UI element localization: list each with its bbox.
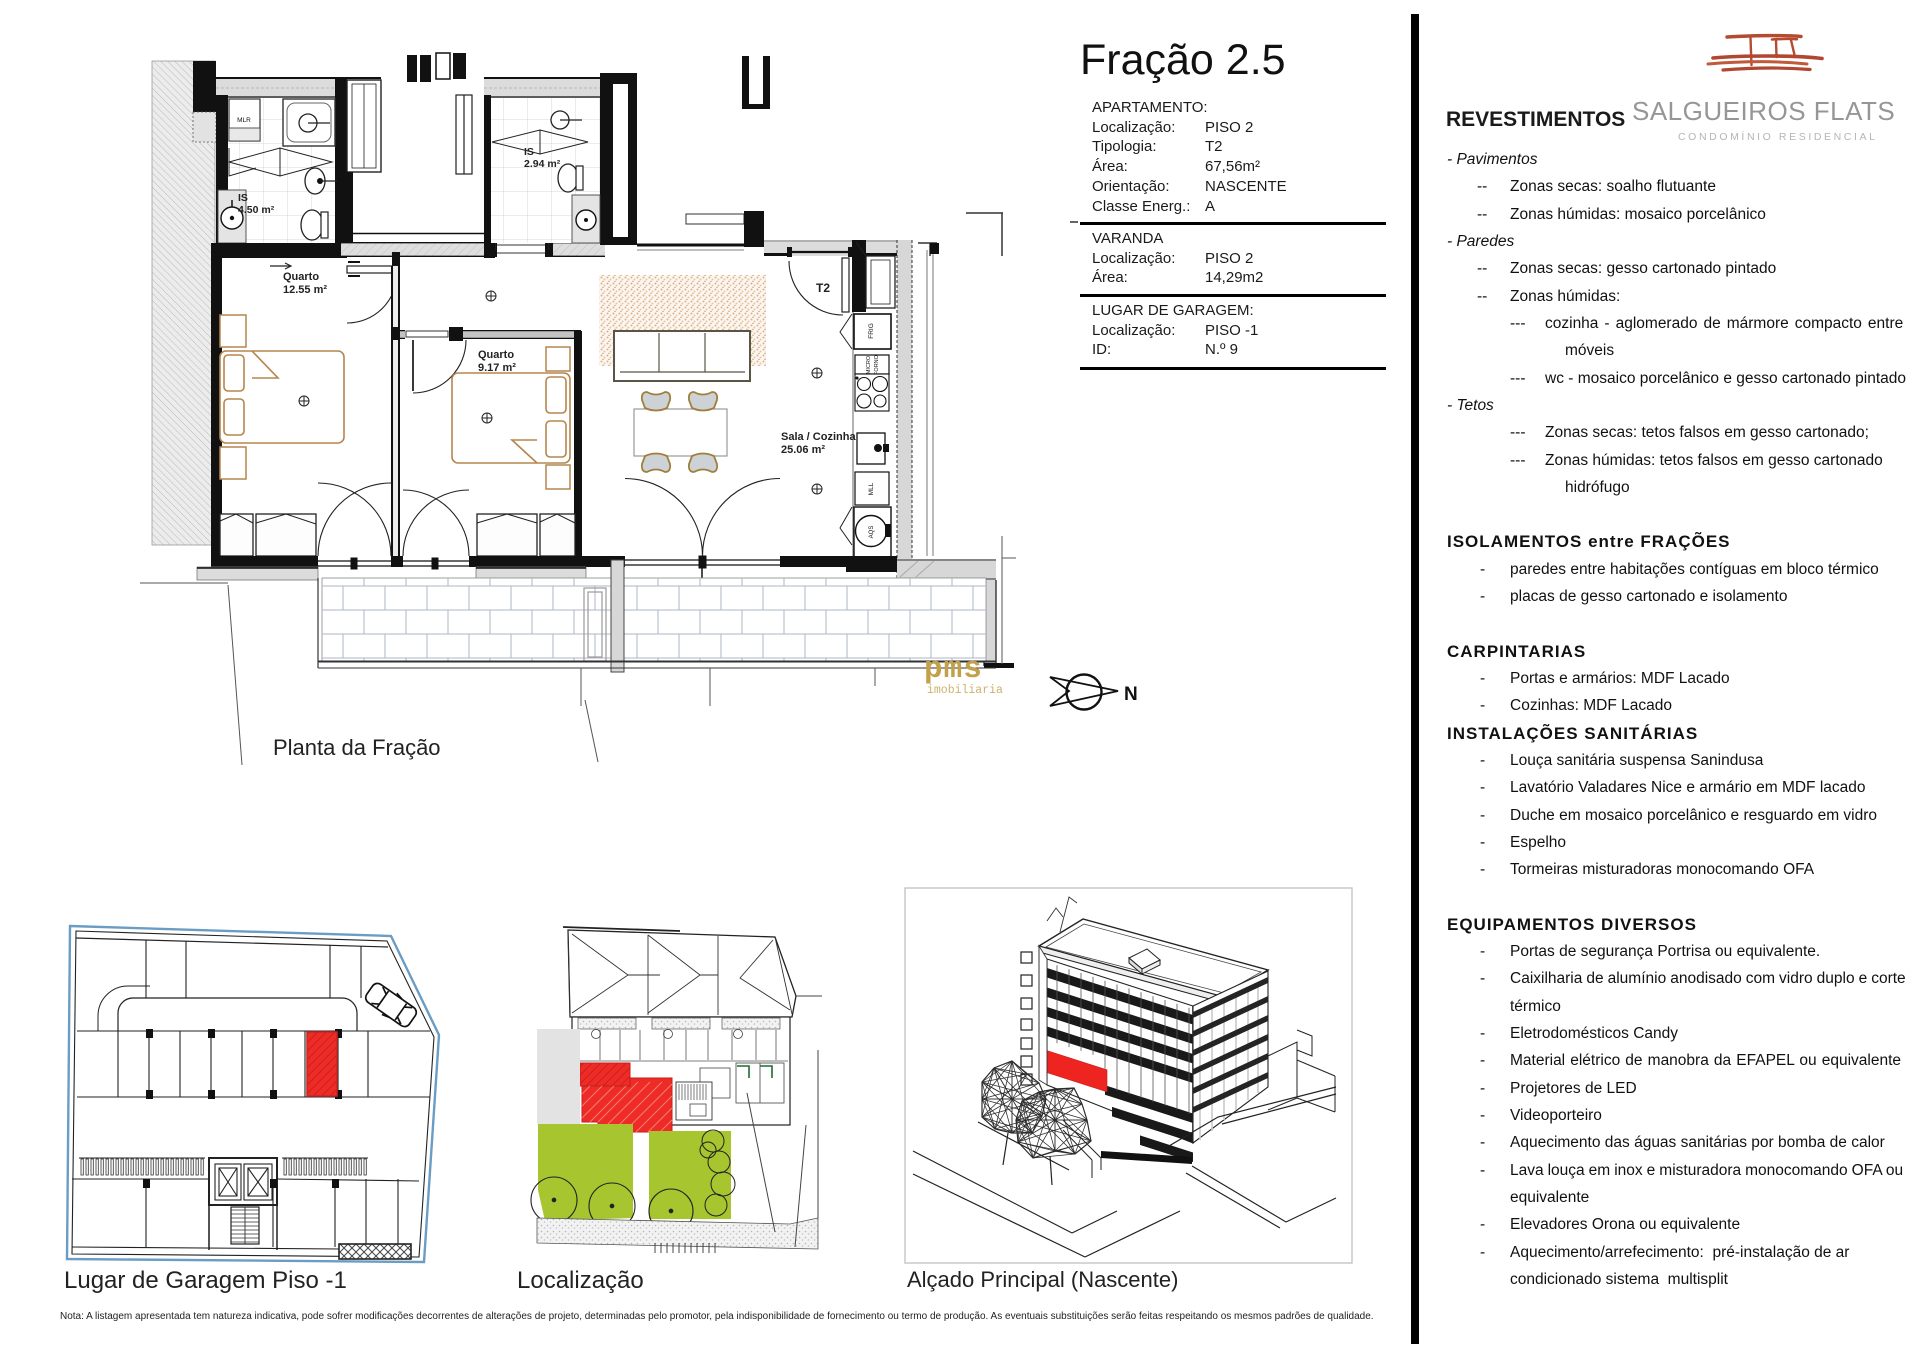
svg-text:4.50 m²: 4.50 m² [238,204,275,216]
svg-text:N: N [1124,684,1138,705]
svg-text:IS: IS [524,146,534,158]
svg-text:Sala / Cozinha: Sala / Cozinha [781,431,856,443]
svg-text:IS: IS [238,192,248,204]
svg-text:FORNO: FORNO [874,354,880,375]
svg-text:2.94 m²: 2.94 m² [524,158,561,170]
svg-text:12.55 m²: 12.55 m² [283,284,327,296]
svg-text:MICRO: MICRO [866,355,872,374]
svg-text:Quarto: Quarto [478,349,514,361]
svg-text:FRIG: FRIG [868,323,875,339]
svg-text:Quarto: Quarto [283,271,319,283]
svg-text:MLL: MLL [868,482,875,495]
svg-text:25.06 m²: 25.06 m² [781,444,825,456]
svg-text:AQS: AQS [869,526,875,539]
svg-text:T2: T2 [816,281,830,295]
svg-text:MLR: MLR [237,117,251,124]
